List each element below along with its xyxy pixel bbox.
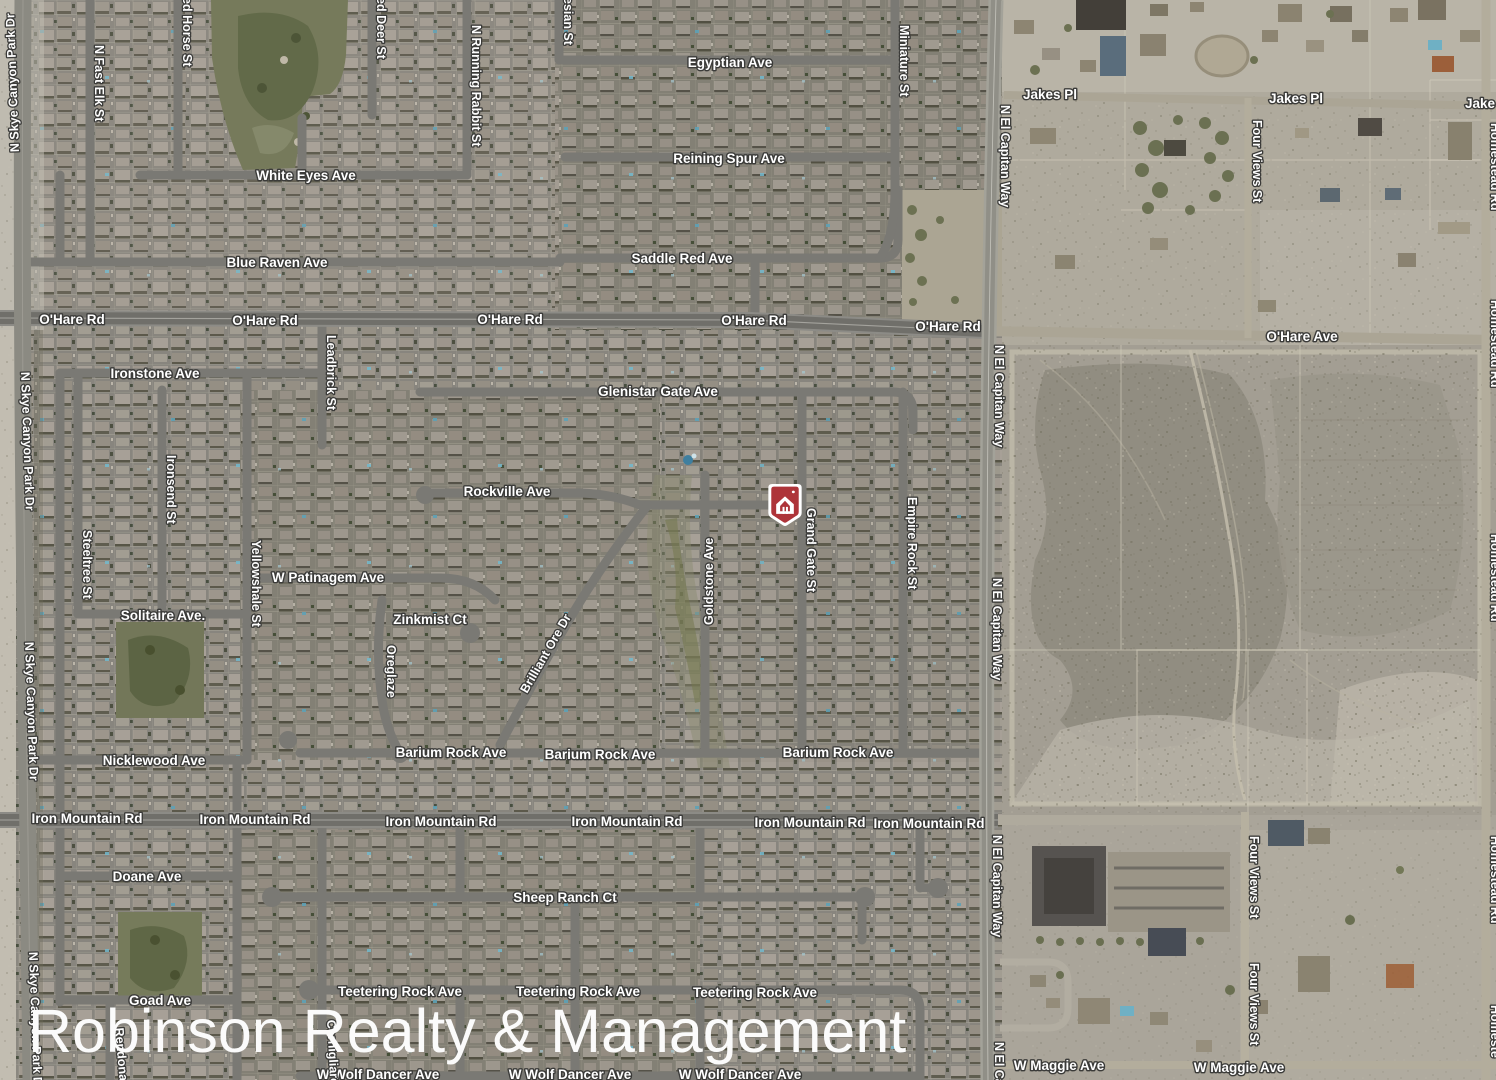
svg-text:Sheep Ranch Ct: Sheep Ranch Ct <box>513 890 617 905</box>
svg-text:N El Capitan Way: N El Capitan Way <box>998 105 1012 207</box>
svg-text:Egyptian Ave: Egyptian Ave <box>688 55 773 70</box>
svg-text:Iron Mountain Rd: Iron Mountain Rd <box>386 814 497 829</box>
svg-text:Homestead Rd: Homestead Rd <box>1488 534 1496 622</box>
svg-text:Robinson Realty & Management: Robinson Realty & Management <box>28 997 906 1065</box>
svg-text:Jake: Jake <box>1465 96 1496 111</box>
svg-text:W Wolf Dancer Ave: W Wolf Dancer Ave <box>509 1067 632 1080</box>
svg-text:Iron Mountain Rd: Iron Mountain Rd <box>755 815 866 830</box>
svg-text:Grand Gate St: Grand Gate St <box>804 508 818 593</box>
svg-text:N El Capitan Way: N El Capitan Way <box>990 578 1004 680</box>
svg-text:Miniature St: Miniature St <box>897 25 911 97</box>
svg-text:W Patinagem Ave: W Patinagem Ave <box>272 570 385 585</box>
svg-text:White Eyes Ave: White Eyes Ave <box>256 168 356 183</box>
svg-text:Homestead Rd: Homestead Rd <box>1488 836 1496 924</box>
svg-text:O'Hare Ave: O'Hare Ave <box>1266 329 1338 344</box>
svg-text:W Wolf Dancer Ave: W Wolf Dancer Ave <box>679 1067 802 1080</box>
svg-text:O'Hare Rd: O'Hare Rd <box>477 312 542 327</box>
svg-text:Glenistar Gate Ave: Glenistar Gate Ave <box>598 384 718 399</box>
svg-text:N Running Rabbit St: N Running Rabbit St <box>469 25 483 147</box>
svg-text:Red Deer St: Red Deer St <box>374 0 388 60</box>
svg-text:Solitaire Ave.: Solitaire Ave. <box>121 608 206 623</box>
svg-text:O'Hare Rd: O'Hare Rd <box>39 312 104 327</box>
svg-text:Yellowshale St: Yellowshale St <box>249 540 263 628</box>
svg-text:N El Capitan Way: N El Capitan Way <box>992 345 1006 447</box>
svg-text:Oreglaze: Oreglaze <box>384 645 398 698</box>
svg-text:Four Views St: Four Views St <box>1247 963 1261 1046</box>
svg-text:Iron Mountain Rd: Iron Mountain Rd <box>874 816 985 831</box>
svg-text:W Maggie Ave: W Maggie Ave <box>1194 1060 1285 1075</box>
svg-text:Saddle Red Ave: Saddle Red Ave <box>631 251 733 266</box>
svg-text:Barium Rock Ave: Barium Rock Ave <box>396 745 507 760</box>
svg-text:Jakes Pl: Jakes Pl <box>1269 91 1323 106</box>
svg-text:Red Horse St: Red Horse St <box>180 0 194 67</box>
svg-text:Steeltree St: Steeltree St <box>80 530 94 600</box>
svg-text:Goldstone Ave: Goldstone Ave <box>702 538 716 625</box>
svg-text:O'Hare Rd: O'Hare Rd <box>721 313 786 328</box>
svg-text:W Maggie Ave: W Maggie Ave <box>1014 1058 1105 1073</box>
svg-text:Blue Raven Ave: Blue Raven Ave <box>226 255 328 270</box>
svg-text:Homestead Rd: Homestead Rd <box>1488 300 1496 388</box>
svg-text:Rockville Ave: Rockville Ave <box>464 484 551 499</box>
svg-text:O'Hare Rd: O'Hare Rd <box>915 319 980 334</box>
svg-text:Ironsend St: Ironsend St <box>164 455 178 525</box>
svg-text:N Fast Elk St: N Fast Elk St <box>92 45 106 122</box>
svg-text:N El Capi: N El Capi <box>992 1042 1006 1080</box>
svg-text:Zinkmist Ct: Zinkmist Ct <box>393 612 467 627</box>
svg-text:Ironstone Ave: Ironstone Ave <box>110 366 200 381</box>
svg-text:Jakes Pl: Jakes Pl <box>1023 87 1077 102</box>
svg-text:Iron Mountain Rd: Iron Mountain Rd <box>572 814 683 829</box>
svg-text:Four Views St: Four Views St <box>1250 120 1264 203</box>
svg-text:Reining Spur Ave: Reining Spur Ave <box>673 151 785 166</box>
svg-text:N El Capitan Way: N El Capitan Way <box>990 835 1004 937</box>
svg-text:Barium Rock Ave: Barium Rock Ave <box>545 747 656 762</box>
svg-text:Leadbrick St: Leadbrick St <box>324 335 338 411</box>
svg-text:Homestead Rd: Homestead Rd <box>1488 123 1496 211</box>
svg-text:Empire Rock St: Empire Rock St <box>905 497 919 590</box>
svg-text:Four Views St: Four Views St <box>1247 836 1261 919</box>
svg-text:Nicklewood Ave: Nicklewood Ave <box>103 753 206 768</box>
svg-text:Doane Ave: Doane Ave <box>113 869 182 884</box>
svg-text:Iron Mountain Rd: Iron Mountain Rd <box>200 812 311 827</box>
svg-text:Forresian St: Forresian St <box>561 0 575 46</box>
svg-text:Homeste: Homeste <box>1488 1005 1496 1058</box>
svg-text:Iron Mountain Rd: Iron Mountain Rd <box>32 811 143 826</box>
svg-text:O'Hare Rd: O'Hare Rd <box>232 313 297 328</box>
svg-text:Barium Rock Ave: Barium Rock Ave <box>783 745 894 760</box>
